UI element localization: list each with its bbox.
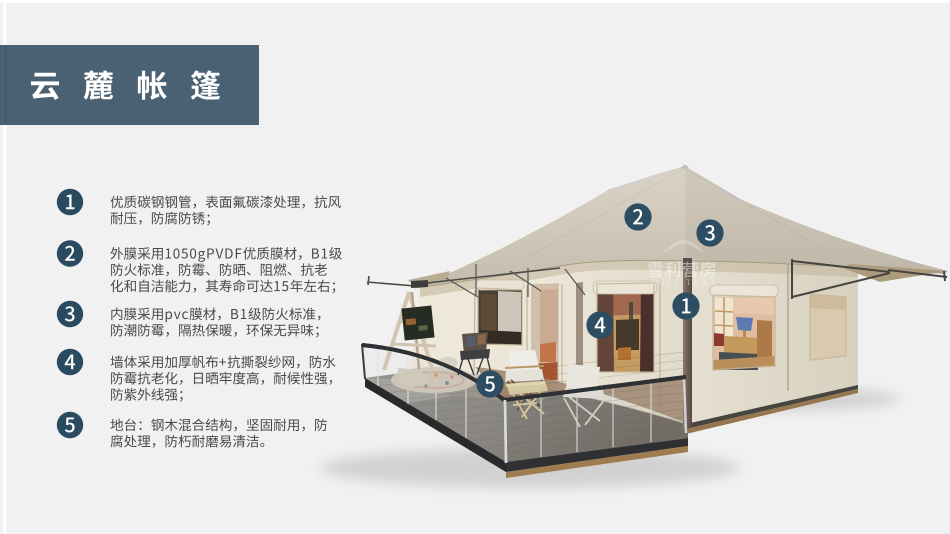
svg-text:XULI TENT: XULI TENT — [650, 278, 718, 287]
